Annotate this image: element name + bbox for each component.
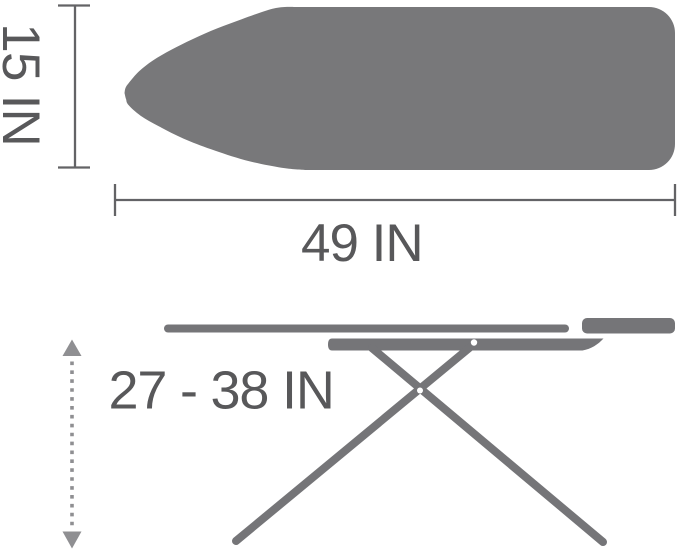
svg-text:15 IN: 15 IN bbox=[0, 23, 50, 146]
svg-text:49 IN: 49 IN bbox=[301, 214, 423, 273]
svg-text:27 - 38 IN: 27 - 38 IN bbox=[109, 360, 334, 420]
